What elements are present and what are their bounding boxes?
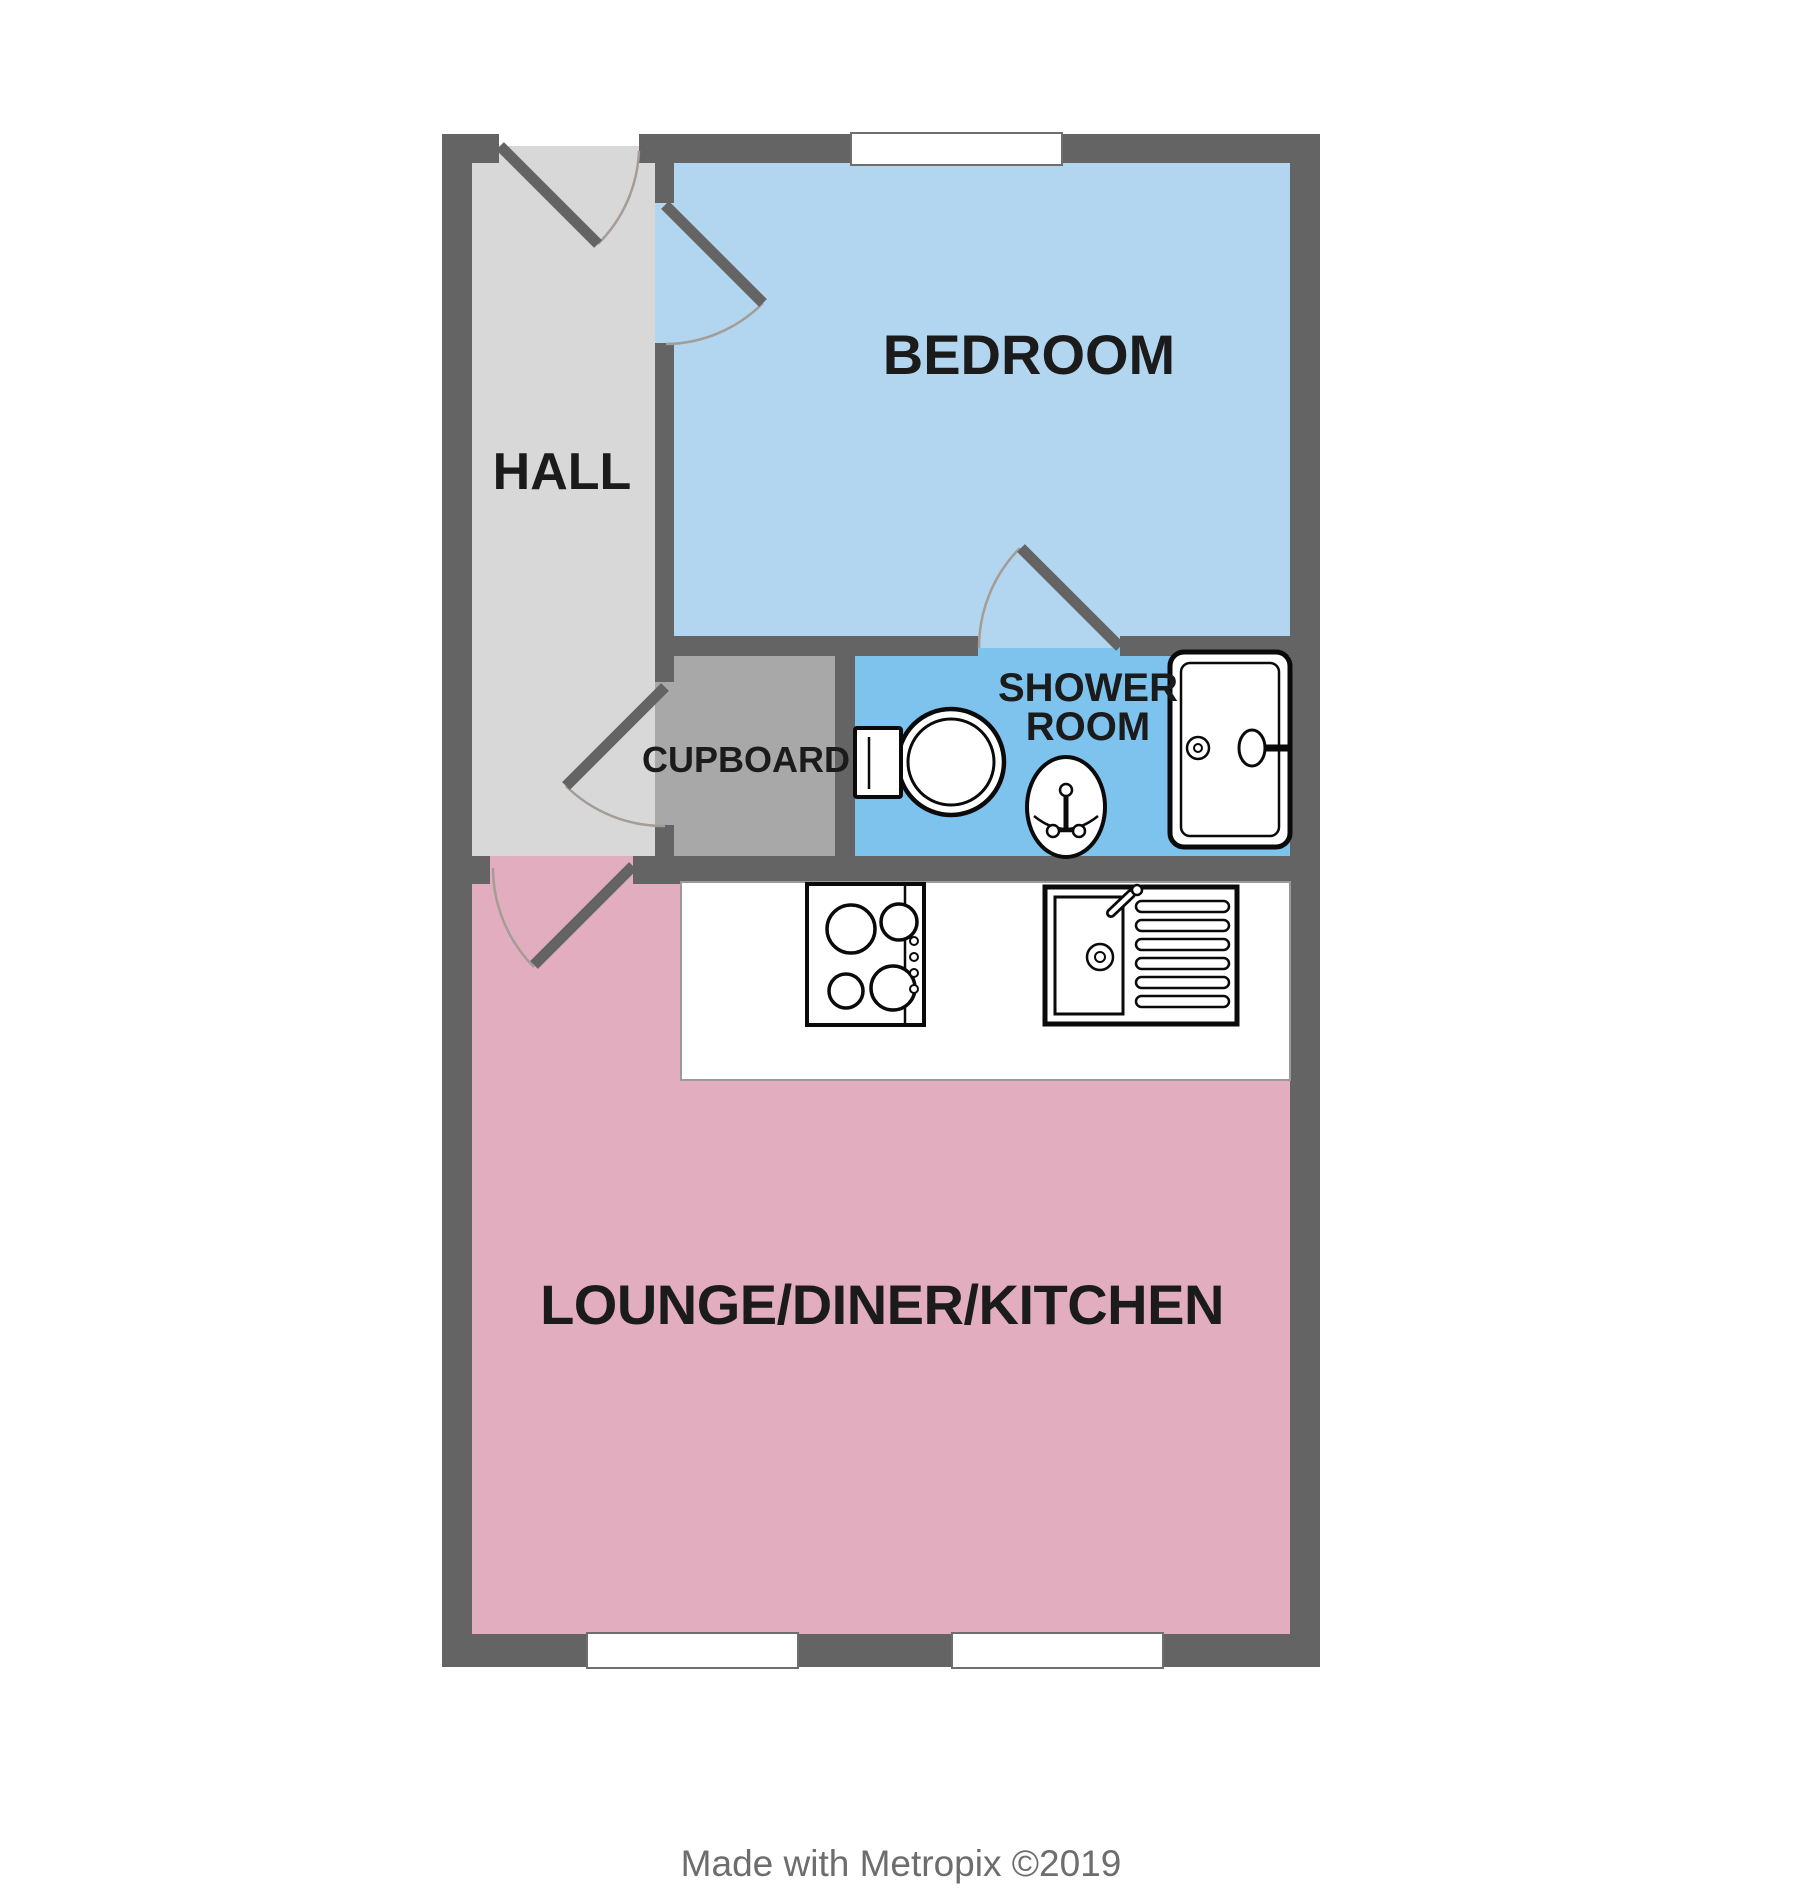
credit-text: Made with Metropix ©2019 (681, 1843, 1122, 1884)
window-lounge-right (952, 1633, 1163, 1668)
wall-right (1290, 134, 1320, 1667)
window-bedroom (851, 133, 1062, 165)
hall-label: HALL (493, 443, 632, 501)
floor-plan-page: HALL BEDROOM CUPBOARD SHOWER ROOM LOUNGE… (0, 0, 1800, 1892)
bedroom-label: BEDROOM (883, 323, 1175, 386)
wall-lounge-top (633, 856, 1290, 884)
cupboard-label: CUPBOARD (642, 739, 850, 780)
room-hall (472, 146, 655, 856)
wall-top-left-stub (442, 134, 499, 163)
wall-hall-divider-mid (655, 343, 674, 682)
wall-hall-divider-top (655, 163, 674, 203)
lounge-label: LOUNGE/DINER/KITCHEN (540, 1273, 1224, 1336)
window-lounge-left (587, 1633, 798, 1668)
kitchen-sink (1045, 885, 1237, 1024)
wall-bottom (442, 1634, 1320, 1667)
wall-lounge-top-stub (472, 856, 490, 884)
wall-bedroom-bottom-left (655, 636, 978, 656)
wall-left (442, 134, 472, 1667)
basin (1027, 757, 1105, 857)
shower-tray (1170, 652, 1292, 847)
room-bedroom (655, 146, 1290, 656)
shower-room-label-line2: ROOM (1026, 705, 1150, 749)
hob (807, 884, 924, 1025)
floor-plan: HALL BEDROOM CUPBOARD SHOWER ROOM LOUNGE… (0, 0, 1800, 1892)
shower-room-label-line1: SHOWER (998, 666, 1178, 710)
